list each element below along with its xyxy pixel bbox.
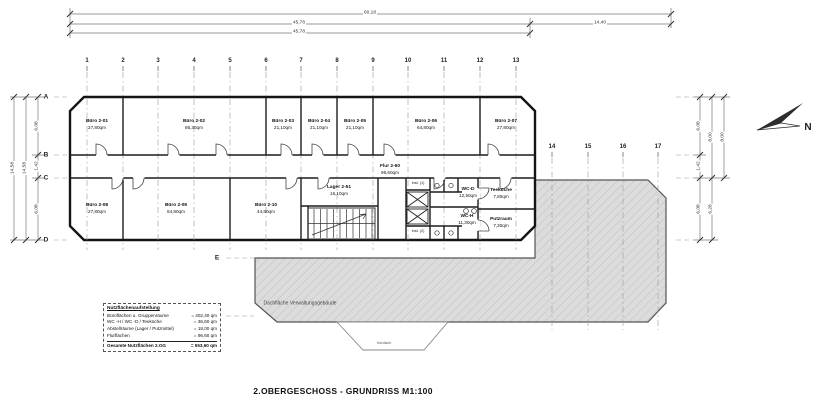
room-area: 21,10qm <box>308 125 330 131</box>
dimension-label: 14,58 <box>12 161 17 175</box>
room-area: 96,60qm <box>380 170 400 176</box>
grid-column-label: 2 <box>121 58 124 64</box>
room-label: WC-H 11,30qm <box>458 214 476 226</box>
dimension-label: 45,78 <box>292 31 306 36</box>
area-total-value: = 553,60 qm <box>191 343 217 350</box>
grid-column-label: 1 <box>85 58 88 64</box>
dimension-label: 60,18 <box>363 12 377 17</box>
room-label: Lager 2-51 16,10qm <box>327 185 351 197</box>
room-label: Büro 2-10 44,80qm <box>255 203 277 215</box>
grid-row-label: C <box>44 175 49 182</box>
grid-row-label: E <box>215 255 219 262</box>
room-label: Büro 2-03 21,10qm <box>272 119 294 131</box>
area-table: Nutzflächenaufstellung Büroflächen u. Gr… <box>103 303 221 352</box>
room-area: 12,50qm <box>459 193 477 199</box>
room-area: 11,30qm <box>458 220 476 226</box>
page-title: 2.OBERGESCHOSS - GRUNDRISS M1:100 <box>253 386 432 396</box>
canopy-outline <box>337 322 448 350</box>
annotation-label: N <box>804 123 811 133</box>
grid-column-label: 14 <box>549 144 556 150</box>
area-row-label: Flurflächen <box>107 333 130 340</box>
room-label: Büro 2-09 64,80qm <box>165 203 187 215</box>
area-row-value: = 18,00 qm <box>194 326 217 333</box>
area-row-value: = 96,60 qm <box>194 333 217 340</box>
grid-column-label: 12 <box>477 58 484 64</box>
room-label: Büro 2-06 64,80qm <box>415 119 437 131</box>
dimension-label: 14,58 <box>24 161 29 175</box>
area-table-row: WC -H / WC -D / Teeküche = 36,60 qm <box>107 319 217 326</box>
area-table-total: Gesamte Nutzflächen 2.OG = 553,60 qm <box>107 341 217 349</box>
room-area: 7,80qm <box>490 194 512 200</box>
room-area: 64,80qm <box>415 125 437 131</box>
grid-column-label: 11 <box>441 58 447 64</box>
room-area: 27,80qm <box>86 209 108 215</box>
area-row-label: WC -H / WC -D / Teeküche <box>107 319 162 326</box>
dimension-label: 45,78 <box>292 22 306 27</box>
grid-row-label: D <box>44 237 49 244</box>
grid-column-label: 13 <box>513 58 520 64</box>
annotation-label: Vordach <box>377 341 392 345</box>
grid-column-label: 7 <box>299 58 302 64</box>
room-area: 64,80qm <box>165 209 187 215</box>
grid-column-label: 17 <box>655 144 662 150</box>
area-row-label: Büroflächen u. Gruppenräume <box>107 313 169 320</box>
dimension-label: 6,08 <box>36 120 41 131</box>
north-arrow-icon <box>757 103 803 130</box>
room-area: 27,80qm <box>86 125 108 131</box>
dimension-label: 14,40 <box>593 22 607 27</box>
dimension-label: 6,08 <box>36 203 41 214</box>
grid-column-label: 9 <box>371 58 374 64</box>
grid-column-label: 16 <box>620 144 627 150</box>
area-table-row: Flurflächen = 96,60 qm <box>107 333 217 340</box>
room-area: 7,30qm <box>490 223 512 229</box>
grid-column-label: 5 <box>228 58 231 64</box>
room-label: Teeküche 7,80qm <box>490 188 512 200</box>
room-label: Putzraum 7,30qm <box>490 217 512 229</box>
room-area: 44,80qm <box>255 209 277 215</box>
dimension-label: 6,08 <box>698 120 703 131</box>
area-row-label: Abstellräume (Lager / Putzmittel) <box>107 326 174 333</box>
area-table-rows: Büroflächen u. Gruppenräume = 402,40 qm … <box>107 313 217 341</box>
room-label: Büro 2-05 21,10qm <box>344 119 366 131</box>
grid-column-label: 15 <box>585 144 592 150</box>
room-label: Büro 2-04 21,10qm <box>308 119 330 131</box>
dimension-label: 1,42 <box>36 160 41 171</box>
grid-column-label: 8 <box>335 58 338 64</box>
room-area: 16,10qm <box>327 191 351 197</box>
grid-row-label: A <box>44 94 49 101</box>
room-label: WC-D 12,50qm <box>459 187 477 199</box>
area-table-row: Büroflächen u. Gruppenräume = 402,40 qm <box>107 313 217 320</box>
grid-column-label: 10 <box>405 58 412 64</box>
area-total-label: Gesamte Nutzflächen 2.OG <box>107 343 166 350</box>
room-label: Flur 2-60 96,60qm <box>380 164 400 176</box>
annotation-label: Dachfläche Verwaltungsgebäude <box>263 302 336 307</box>
dimension-label: 8,00 <box>722 131 727 142</box>
room-area: 21,10qm <box>344 125 366 131</box>
room-area: 21,10qm <box>272 125 294 131</box>
room-label: Büro 2-08 27,80qm <box>86 203 108 215</box>
dimension-label: 8,00 <box>710 131 715 142</box>
area-table-title: Nutzflächenaufstellung <box>107 306 217 311</box>
area-table-row: Abstellräume (Lager / Putzmittel) = 18,0… <box>107 326 217 333</box>
dimension-label: 1,42 <box>698 160 703 171</box>
room-label: Büro 2-02 86,30qm <box>183 119 205 131</box>
annotation-label: Inst. (2) <box>412 230 425 234</box>
grid-row-label: B <box>44 152 49 159</box>
room-area: 27,80qm <box>495 125 517 131</box>
dimension-label: 6,08 <box>698 203 703 214</box>
area-row-value: = 402,40 qm <box>191 313 217 320</box>
grid-column-label: 4 <box>192 58 195 64</box>
grid-column-label: 3 <box>156 58 159 64</box>
room-label: Büro 2-07 27,80qm <box>495 119 517 131</box>
room-label: Büro 2-01 27,80qm <box>86 119 108 131</box>
grid-column-label: 6 <box>264 58 267 64</box>
floorplan-canvas: 12345678910111213 14151617 ABCDEF 60,184… <box>0 0 828 400</box>
room-area: 86,30qm <box>183 125 205 131</box>
annotation-label: Inst. (1) <box>412 182 425 186</box>
dimension-label: 6,28 <box>710 203 715 214</box>
area-row-value: = 36,60 qm <box>194 319 217 326</box>
